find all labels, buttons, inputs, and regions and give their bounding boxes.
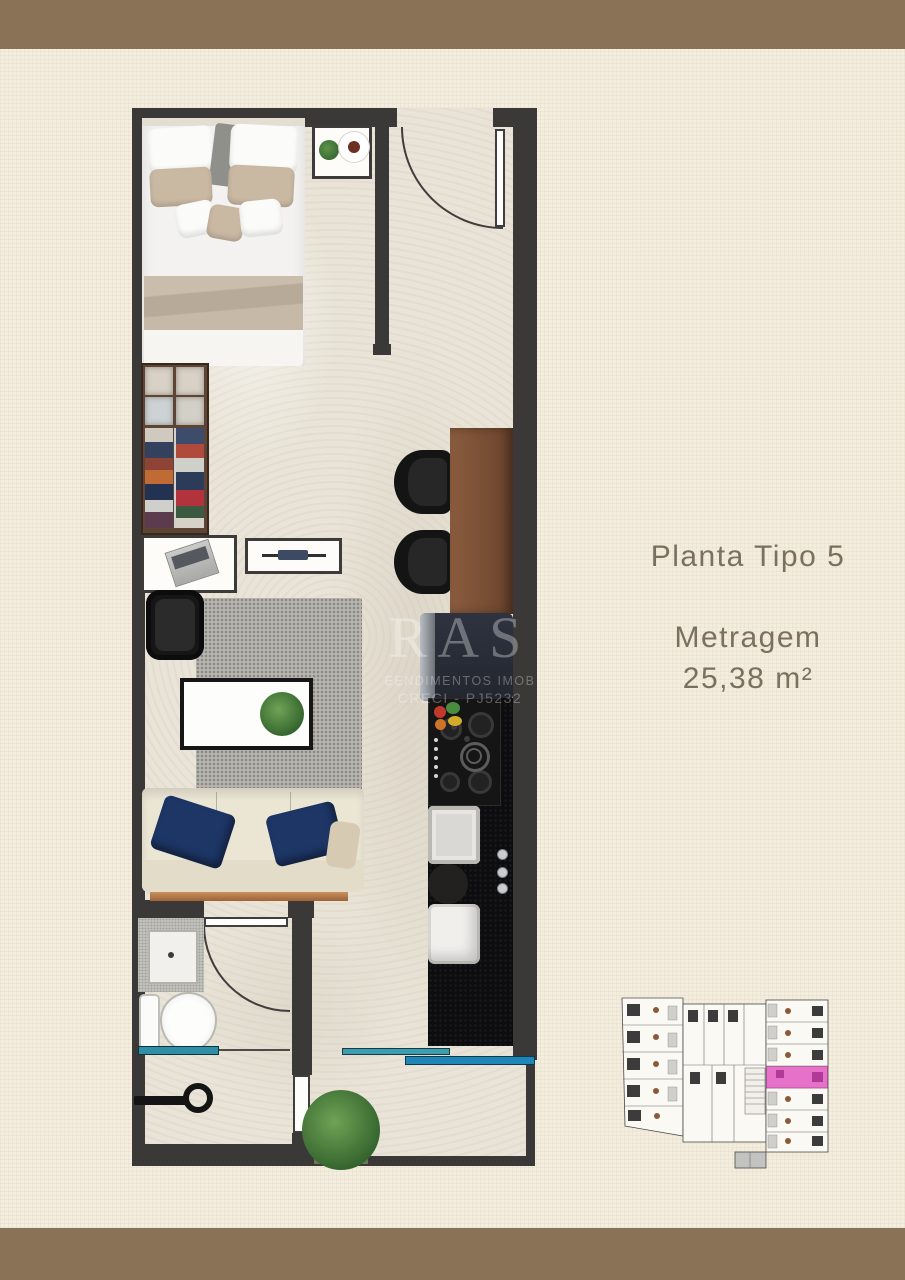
key-plan-elevator	[735, 1152, 766, 1168]
coffee-table-plant	[260, 692, 304, 736]
dining-chair	[394, 450, 452, 514]
desk	[141, 535, 237, 593]
control-dot	[434, 765, 438, 769]
bottom-border-bar	[0, 1228, 905, 1280]
kitchen-counter	[428, 698, 513, 1046]
wall-balcony-right	[526, 1058, 535, 1166]
sofa-back-frame	[150, 892, 348, 901]
hanging-clothes	[176, 428, 204, 528]
fruit-bowl	[428, 864, 468, 904]
burner	[468, 770, 492, 794]
plan-area-value: 25,38 m²	[590, 662, 905, 696]
faucet-knob	[498, 850, 507, 859]
dining-table	[450, 428, 513, 614]
shower-glass-partition	[138, 1046, 219, 1055]
top-border-bar	[0, 0, 905, 49]
control-dot	[434, 756, 438, 760]
bathroom-divider-line	[219, 1049, 290, 1051]
plan-title: Planta Tipo 5	[590, 540, 905, 574]
folded-clothes	[145, 397, 173, 425]
fruit	[434, 706, 446, 718]
sofa-pillow-beige	[325, 820, 361, 870]
faucet-knob	[498, 884, 507, 893]
sofa-pillow-navy	[149, 794, 237, 870]
control-ring	[466, 748, 482, 764]
wall-entry-divider	[375, 127, 389, 355]
apartment-floorplan: RAS EENDIMENTOS IMOB CRECI - PJ5232	[130, 106, 537, 1168]
wardrobe-divider	[174, 428, 177, 528]
balcony-glass-panel	[342, 1048, 450, 1055]
nightstand	[312, 125, 372, 179]
wall-bathroom-top-left	[132, 900, 204, 918]
burner	[468, 712, 494, 738]
fridge	[420, 613, 513, 701]
wall-entry-divider-cap	[373, 344, 391, 355]
toilet-tank	[139, 994, 160, 1050]
folded-clothes	[176, 367, 204, 395]
fruit	[448, 716, 462, 726]
shower-head	[183, 1083, 213, 1113]
double-bed	[142, 118, 305, 366]
decor-tray	[339, 132, 369, 162]
wall-right	[513, 108, 537, 1060]
wall-bathroom-partition	[292, 900, 312, 1075]
control-dot	[434, 747, 438, 751]
control-dot	[434, 738, 438, 742]
control-dot	[434, 774, 438, 778]
dining-chair	[394, 530, 452, 594]
bathroom-door-leaf	[204, 917, 288, 927]
vanity-drain	[168, 952, 174, 958]
shower-arm	[134, 1096, 187, 1105]
balcony-plant	[302, 1090, 380, 1170]
fruit	[435, 719, 446, 730]
building-key-plan	[616, 990, 846, 1174]
plan-info: Planta Tipo 5 Metragem 25,38 m²	[590, 540, 905, 696]
hanging-clothes	[145, 428, 173, 528]
nightstand-plant	[319, 140, 339, 160]
shelf-device	[278, 550, 308, 560]
coffee-table	[180, 678, 313, 750]
entry-door-leaf	[495, 129, 505, 227]
burner	[440, 772, 460, 792]
kitchen-sink	[428, 806, 480, 864]
laptop-screen	[171, 546, 209, 569]
laptop	[166, 540, 218, 586]
folded-clothes	[176, 397, 204, 425]
faucet-knob	[498, 868, 507, 877]
bathroom-vanity	[138, 918, 204, 992]
wall-shelf	[245, 538, 342, 574]
bed-cushion	[238, 198, 284, 238]
bed-sheet	[144, 330, 303, 366]
sink-drain	[464, 736, 470, 742]
wall-bottom	[132, 1144, 316, 1166]
folded-clothes	[145, 367, 173, 395]
decor-dish	[348, 141, 360, 153]
open-wardrobe	[141, 363, 209, 535]
bed-blanket	[144, 276, 303, 330]
balcony-glass-door	[405, 1056, 535, 1065]
brochure-page: RAS EENDIMENTOS IMOB CRECI - PJ5232 Plan…	[0, 0, 905, 1280]
fruit	[446, 702, 460, 714]
plan-area-label: Metragem	[590, 621, 905, 655]
key-plan-stairs	[745, 1068, 765, 1114]
laundry-sink	[428, 904, 480, 964]
sofa	[142, 788, 364, 892]
office-chair	[146, 590, 204, 660]
